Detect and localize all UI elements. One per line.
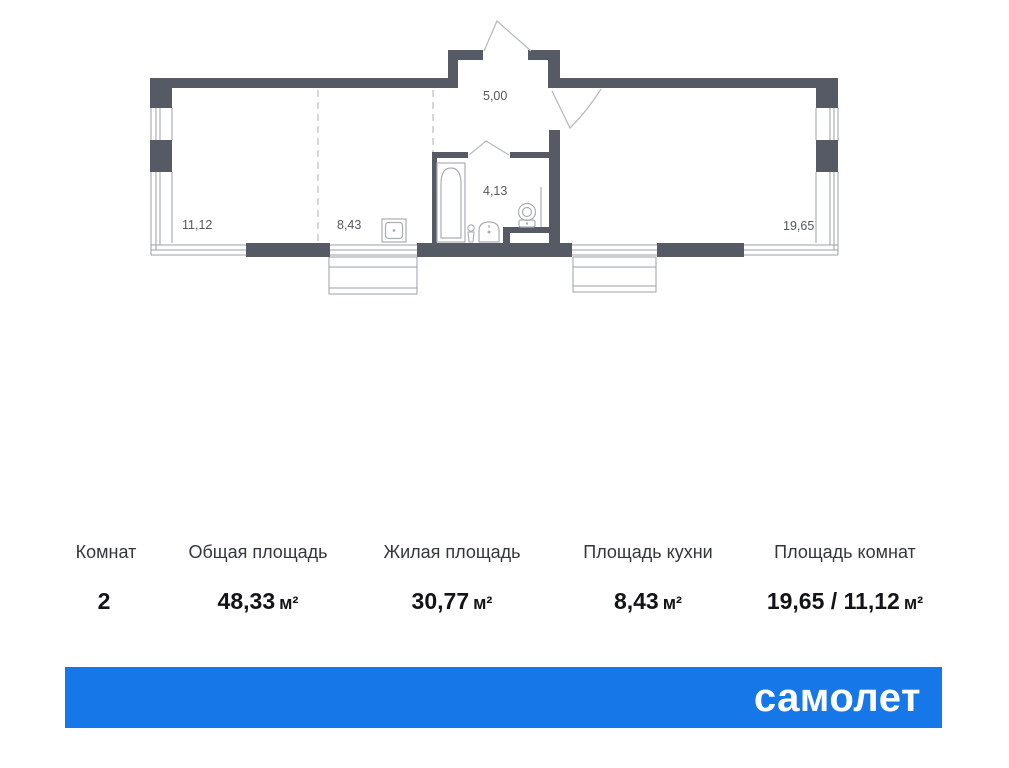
door-bathroom (469, 141, 509, 155)
basin-drain (488, 231, 491, 234)
zone-dividers (318, 90, 433, 243)
summary-value: 19,65 / 11,12м² (767, 588, 923, 615)
brand-logo: самолет (754, 678, 921, 718)
room-area-label-bathroom: 4,13 (483, 184, 507, 198)
room-area-label-kitchen: 8,43 (337, 218, 361, 232)
wall-vestibule-top-left (448, 50, 483, 60)
ledge-bottom-left (151, 245, 246, 255)
facade-ledge-lines (151, 108, 838, 255)
window-right (830, 108, 838, 141)
door-bedroom (552, 89, 601, 128)
door-entrance (484, 21, 531, 51)
brand-banner: самолет (65, 667, 942, 728)
window-left (151, 108, 160, 141)
window-bottom-bedroom (572, 245, 657, 255)
shower-mixer (468, 225, 474, 242)
summary-col-kitchen-area: Площадь кухни 8,43м² (583, 542, 712, 615)
wall-top-left (150, 78, 448, 88)
toilet (519, 204, 536, 228)
wall-bottom-2 (417, 243, 572, 257)
summary-value: 8,43м² (583, 588, 712, 615)
summary-label: Общая площадь (188, 542, 327, 563)
wall-bath-top-left (432, 152, 468, 158)
wall-vestibule-top-right (528, 50, 560, 60)
wall-bath-left (432, 152, 437, 243)
summary-label: Комнат (76, 542, 137, 563)
wall-pier-right (816, 140, 838, 172)
summary-col-living-area: Жилая площадь 30,77м² (383, 542, 520, 615)
toilet-button (526, 222, 528, 224)
room-area-labels: 11,12 8,43 5,00 4,13 19,65 (182, 89, 814, 233)
wall-top-right (548, 78, 838, 88)
flat-card: 11,12 8,43 5,00 4,13 19,65 Комнат 2 Обща… (0, 0, 1009, 768)
ledge-right (830, 172, 838, 255)
kitchen-sink-drain (393, 229, 396, 232)
toilet-bowl-inner (523, 208, 532, 217)
balcony-bedroom (573, 257, 656, 292)
summary-col-total-area: Общая площадь 48,33м² (188, 542, 327, 615)
mixer-body (468, 232, 474, 242)
room-area-label-hallway: 5,00 (483, 89, 507, 103)
summary-label: Площадь комнат (767, 542, 923, 563)
window-bottom-kitchen (330, 245, 417, 255)
toilet-bowl-outer (519, 204, 536, 221)
summary-value: 30,77м² (383, 588, 520, 615)
room-area-label-living-room: 11,12 (182, 218, 212, 232)
walls (150, 50, 838, 257)
wall-bottom-1 (246, 243, 330, 257)
wall-corner-top-right (816, 78, 838, 108)
summary-col-rooms: Комнат 2 (76, 542, 137, 615)
wall-pier-left (150, 140, 172, 172)
summary-label: Площадь кухни (583, 542, 712, 563)
ledge-left (151, 172, 160, 255)
wall-bath-top-right (510, 152, 549, 158)
summary-value: 48,33м² (188, 588, 327, 615)
balconies (329, 257, 656, 294)
floor-plan: 11,12 8,43 5,00 4,13 19,65 (0, 0, 1009, 520)
mixer-head (468, 225, 474, 231)
summary-value: 2 (76, 588, 137, 615)
wall-shaft-horizontal (503, 227, 549, 233)
wall-bottom-3 (657, 243, 744, 257)
bathtub (437, 163, 465, 242)
ledge-bottom-right (744, 245, 838, 255)
summary-label: Жилая площадь (383, 542, 520, 563)
wall-hall-bedroom (549, 130, 560, 243)
room-area-label-bedroom: 19,65 (783, 219, 814, 233)
wall-corner-top-left (150, 78, 172, 108)
wash-basin (479, 222, 499, 242)
summary-col-rooms-area: Площадь комнат 19,65 / 11,12м² (767, 542, 923, 615)
kitchen-sink (382, 219, 406, 242)
